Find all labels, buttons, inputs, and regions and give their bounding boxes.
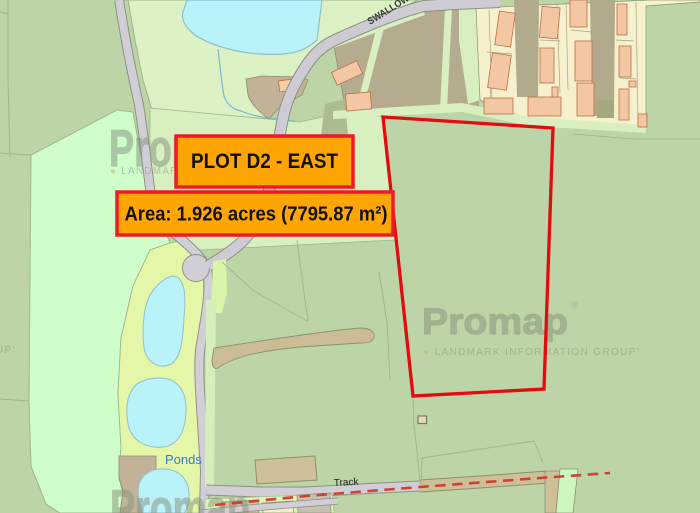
svg-text:Promap: Promap: [110, 480, 250, 513]
svg-text:®: ®: [571, 300, 578, 310]
svg-text:● LANDMARK INFORMATION GROUP’: ● LANDMARK INFORMATION GROUP’: [423, 347, 640, 358]
svg-text:Track: Track: [334, 477, 360, 489]
svg-text:Area: 1.926 acres (7795.87 m²): Area: 1.926 acres (7795.87 m²): [125, 203, 388, 226]
svg-text:PLOT D2 - EAST: PLOT D2 - EAST: [191, 149, 338, 173]
svg-text:UP’: UP’: [0, 345, 16, 356]
svg-text:Ponds: Ponds: [165, 452, 202, 467]
